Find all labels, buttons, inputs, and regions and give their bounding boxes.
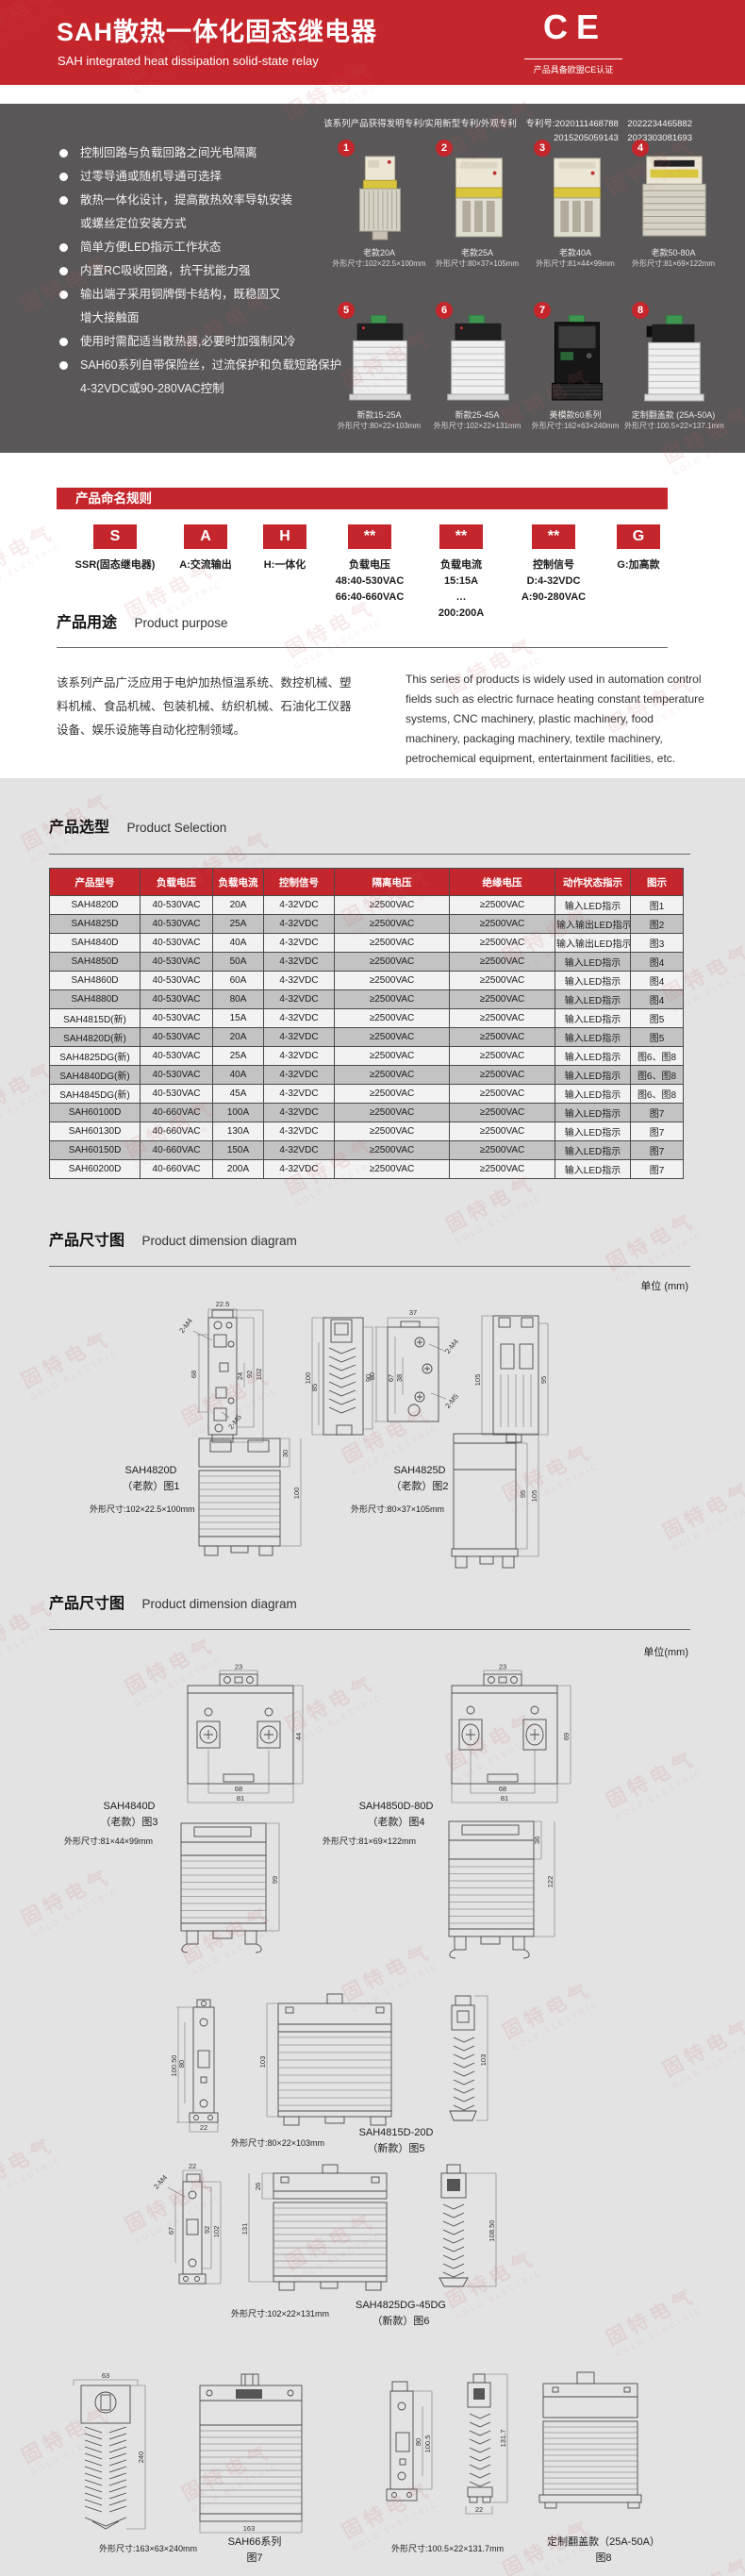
naming-desc-line: A:90-280VAC: [497, 590, 610, 606]
feature-text: 内置RC吸收回路，抗干扰能力强: [80, 264, 251, 277]
table-cell: 图4: [631, 990, 684, 1009]
purpose-rule: [57, 647, 668, 648]
product-photo: [338, 315, 421, 407]
table-cell: 45A: [213, 1085, 264, 1104]
dim-label: 22: [189, 2163, 196, 2170]
bullet-dot-icon: [59, 267, 68, 275]
table-cell: 50A: [213, 953, 264, 972]
naming-code-box: A: [184, 524, 227, 549]
table-cell: 输入LED指示: [555, 1085, 631, 1104]
naming-part: GG:加高款: [582, 524, 695, 573]
table-header-cell: 产品型号: [50, 869, 141, 896]
product-size: 外形尺寸:80×37×105mm: [428, 258, 526, 269]
table-cell: 输入LED指示: [555, 1122, 631, 1141]
dim-label: 68: [190, 1371, 198, 1378]
table-row: SAH4820D40-530VAC20A4-32VDC≥2500VAC≥2500…: [50, 896, 684, 915]
product-number-badge: 7: [534, 302, 551, 319]
table-cell: SAH4845DG(新): [50, 1085, 141, 1104]
table-cell: ≥2500VAC: [335, 1104, 450, 1122]
table-cell: 200A: [213, 1160, 264, 1179]
product-gallery: 1老款20A外形尺寸:102×22.5×100mm2老款25A外形尺寸:80×3…: [330, 104, 745, 453]
fig5-caption: SAH4815D-20D （新款）图5: [321, 2125, 472, 2157]
fig7-variant: 图7: [193, 2551, 316, 2567]
table-cell: 输入LED指示: [555, 896, 631, 915]
table-row: SAH4825DG(新)40-530VAC25A4-32VDC≥2500VAC≥…: [50, 1047, 684, 1066]
table-row: SAH4860D40-530VAC60A4-32VDC≥2500VAC≥2500…: [50, 972, 684, 990]
product-photo: [534, 315, 617, 407]
table-cell: 40-530VAC: [141, 990, 213, 1009]
table-cell: SAH4840D: [50, 934, 141, 953]
page-title: SAH散热一体化固态继电器: [57, 11, 377, 48]
table-cell: 输入LED指示: [555, 953, 631, 972]
product-number-badge: 1: [338, 140, 355, 157]
dim-label: 69: [562, 1733, 571, 1740]
feature-item: 输出端子采用铜牌倒卡结构，既稳固又: [58, 283, 334, 307]
product-photo: [436, 315, 519, 407]
product-card: 7美模款60系列外形尺寸:162×63×240mm: [526, 304, 624, 431]
bullet-dot-icon: [59, 196, 68, 205]
fig6-size: 外形尺寸:102×22×131mm: [231, 2307, 329, 2319]
product-size: 外形尺寸:81×69×122mm: [624, 258, 722, 269]
dim-label: 36: [533, 1836, 541, 1844]
table-cell: ≥2500VAC: [450, 1047, 555, 1066]
bullet-dot-icon: [59, 173, 68, 181]
dim-label: 108.50: [488, 2220, 496, 2242]
feature-text: 或螺丝定位安装方式: [80, 217, 187, 230]
feature-text: 控制回路与负载回路之间光电隔离: [80, 146, 257, 159]
table-cell: SAH4880D: [50, 990, 141, 1009]
bullet-dot-icon: [59, 361, 68, 370]
table-row: SAH4820D(新)40-530VAC20A4-32VDC≥2500VAC≥2…: [50, 1028, 684, 1047]
table-cell: ≥2500VAC: [450, 896, 555, 915]
product-card: 1老款20A外形尺寸:102×22.5×100mm: [330, 141, 428, 269]
dim-label: 105: [473, 1374, 482, 1387]
table-cell: 图5: [631, 1009, 684, 1028]
table-row: SAH60100D40-660VAC100A4-32VDC≥2500VAC≥25…: [50, 1104, 684, 1122]
dim-label: 103: [258, 2056, 267, 2069]
table-header-cell: 动作状态指示: [555, 869, 631, 896]
feature-item: SAH60系列自带保险丝，过流保护和负载短路保护: [58, 354, 334, 377]
table-cell: 输入LED指示: [555, 1009, 631, 1028]
dim-label: 92: [203, 2226, 211, 2234]
feature-text: SAH60系列自带保险丝，过流保护和负载短路保护: [80, 358, 341, 372]
fig4-front-drawing: 36 122: [426, 1812, 563, 1968]
fig8-caption: 定制翻盖款（25A-50A） 图8: [514, 2534, 693, 2567]
dim-label: 2-M4: [177, 1317, 194, 1335]
dim-label: 68: [235, 1785, 242, 1793]
ce-certification-note: 产品具备欧盟CE认证: [513, 63, 634, 75]
table-header-cell: 控制信号: [264, 869, 335, 896]
table-header-cell: 负载电流: [213, 869, 264, 896]
fig1-caption: SAH4820D （老款）图1: [90, 1463, 212, 1495]
table-cell: ≥2500VAC: [450, 990, 555, 1009]
table-cell: 40-530VAC: [141, 1047, 213, 1066]
naming-code-box: **: [348, 524, 391, 549]
product-size: 外形尺寸:102×22.5×100mm: [330, 258, 428, 269]
table-cell: ≥2500VAC: [335, 953, 450, 972]
feature-item: 或螺丝定位安装方式: [58, 212, 334, 236]
naming-desc-line: 200:200A: [405, 606, 518, 622]
dim-label: 80: [414, 2438, 422, 2446]
product-name: 老款40A: [526, 246, 624, 258]
feature-text: 散热一体化设计，提高散热效率导轨安装: [80, 193, 292, 207]
table-cell: SAH60130D: [50, 1122, 141, 1141]
table-cell: 4-32VDC: [264, 1160, 335, 1179]
table-cell: SAH4860D: [50, 972, 141, 990]
dim-label: 2-M5: [226, 1413, 243, 1431]
selection-heading-en: Product Selection: [126, 821, 226, 835]
table-cell: ≥2500VAC: [335, 1028, 450, 1047]
fig1-model: SAH4820D: [90, 1463, 212, 1479]
table-cell: SAH4850D: [50, 953, 141, 972]
table-cell: SAH60100D: [50, 1104, 141, 1122]
table-cell: ≥2500VAC: [450, 1160, 555, 1179]
table-cell: ≥2500VAC: [335, 972, 450, 990]
purpose-text-en: This series of products is widely used i…: [406, 670, 709, 769]
fig8-size: 外形尺寸:100.5×22×131.7mm: [391, 2542, 504, 2554]
table-row: SAH60200D40-660VAC200A4-32VDC≥2500VAC≥25…: [50, 1160, 684, 1179]
table-cell: 60A: [213, 972, 264, 990]
table-cell: SAH4825D: [50, 915, 141, 934]
dim-label: 92: [245, 1371, 254, 1378]
dim2-unit: 单位(mm): [643, 1644, 688, 1659]
ce-divider: [524, 58, 622, 59]
dim-label: 23: [499, 1663, 506, 1671]
table-cell: 20A: [213, 1028, 264, 1047]
feature-item: 使用时需配适当散热器,必要时加强制风冷: [58, 330, 334, 354]
dim-label: 80: [368, 1372, 376, 1380]
table-cell: 40-660VAC: [141, 1104, 213, 1122]
product-photo: [632, 315, 715, 407]
table-cell: 40-660VAC: [141, 1160, 213, 1179]
product-name: 新款25-45A: [428, 408, 526, 421]
feature-text: 使用时需配适当散热器,必要时加强制风冷: [80, 335, 295, 348]
dim-label: 22.5: [216, 1300, 230, 1308]
table-cell: SAH60150D: [50, 1141, 141, 1160]
selection-table-body: SAH4820D40-530VAC20A4-32VDC≥2500VAC≥2500…: [50, 896, 684, 1179]
dim-label: 105: [530, 1490, 538, 1503]
dim-label: 95: [539, 1376, 548, 1384]
table-cell: 4-32VDC: [264, 1009, 335, 1028]
fig1-size: 外形尺寸:102×22.5×100mm: [90, 1503, 195, 1515]
dim-label: 163: [243, 2524, 256, 2533]
table-cell: ≥2500VAC: [335, 1066, 450, 1085]
product-photo: [534, 153, 617, 245]
dim-label: 122: [546, 1876, 555, 1888]
table-cell: 图1: [631, 896, 684, 915]
table-cell: 4-32VDC: [264, 1122, 335, 1141]
fig5-size: 外形尺寸:80×22×103mm: [231, 2136, 324, 2149]
dim-label: 30: [281, 1450, 290, 1457]
fig5-model: SAH4815D-20D: [321, 2125, 472, 2141]
table-cell: ≥2500VAC: [335, 1085, 450, 1104]
fig7-model: SAH66系列: [193, 2534, 316, 2551]
feature-item: 4-32VDC或90-280VAC控制: [58, 377, 334, 401]
naming-code-box: S: [93, 524, 137, 549]
fig3-model: SAH4840D: [68, 1799, 190, 1815]
dim2-heading-en: Product dimension diagram: [141, 1597, 296, 1611]
table-header-cell: 绝缘电压: [450, 869, 555, 896]
table-cell: 40-530VAC: [141, 1085, 213, 1104]
dim-label: 37: [409, 1308, 417, 1317]
table-cell: 图7: [631, 1141, 684, 1160]
table-cell: ≥2500VAC: [335, 1122, 450, 1141]
table-cell: ≥2500VAC: [335, 1009, 450, 1028]
table-cell: 40A: [213, 1066, 264, 1085]
fig3-top-drawing: 23 44 68 81: [165, 1663, 316, 1806]
dim-label: 81: [237, 1794, 244, 1803]
table-cell: ≥2500VAC: [450, 1104, 555, 1122]
table-cell: ≥2500VAC: [450, 953, 555, 972]
fig3-front-drawing: 99: [158, 1814, 290, 1965]
dim-label: 67: [167, 2227, 175, 2235]
dim-label: 2-M4: [152, 2173, 169, 2191]
selection-table: 产品型号负载电压负载电流控制信号隔离电压绝缘电压动作状态指示图示 SAH4820…: [49, 868, 684, 1179]
fig6-drawing: 22 2-M4 67 92 102 26 131: [141, 2163, 519, 2297]
dim-label: 22: [475, 2505, 483, 2514]
table-cell: SAH4820D: [50, 896, 141, 915]
feature-item: 简单方便LED指示工作状态: [58, 236, 334, 259]
table-cell: 40A: [213, 934, 264, 953]
table-cell: SAH4820D(新): [50, 1028, 141, 1047]
header-gap: [0, 85, 745, 104]
product-size: 外形尺寸:100.5×22×137.1mm: [624, 421, 722, 431]
feature-list: 控制回路与负载回路之间光电隔离过零导通或随机导通可选择散热一体化设计，提高散热效…: [58, 141, 334, 401]
table-cell: 图7: [631, 1122, 684, 1141]
fig3-size: 外形尺寸:81×44×99mm: [64, 1835, 153, 1847]
product-card: 5新款15-25A外形尺寸:80×22×103mm: [330, 304, 428, 431]
table-cell: 80A: [213, 990, 264, 1009]
product-size: 外形尺寸:102×22×131mm: [428, 421, 526, 431]
purpose-heading: 产品用途 Product purpose: [57, 609, 228, 632]
table-cell: SAH4815D(新): [50, 1009, 141, 1028]
fig2-front-drawing: 95 105: [439, 1424, 542, 1585]
table-cell: 图7: [631, 1104, 684, 1122]
table-cell: 4-32VDC: [264, 1047, 335, 1066]
feature-item: 内置RC吸收回路，抗干扰能力强: [58, 259, 334, 283]
table-cell: 40-530VAC: [141, 915, 213, 934]
dim-label: 100: [304, 1372, 312, 1385]
bullet-dot-icon: [59, 338, 68, 346]
table-cell: ≥2500VAC: [450, 1085, 555, 1104]
table-header-cell: 负载电压: [141, 869, 213, 896]
product-size: 外形尺寸:162×63×240mm: [526, 421, 624, 431]
table-cell: 输入LED指示: [555, 990, 631, 1009]
product-card: 6新款25-45A外形尺寸:102×22×131mm: [428, 304, 526, 431]
table-cell: SAH60200D: [50, 1160, 141, 1179]
table-cell: ≥2500VAC: [450, 972, 555, 990]
table-cell: 输入LED指示: [555, 1141, 631, 1160]
table-cell: 4-32VDC: [264, 896, 335, 915]
table-cell: 图7: [631, 1160, 684, 1179]
product-name: 老款50-80A: [624, 246, 722, 258]
dim1-rule: [49, 1266, 690, 1267]
dim-label: 38: [395, 1374, 404, 1382]
dim-label: 100: [292, 1487, 301, 1500]
table-cell: 25A: [213, 915, 264, 934]
dim-label: 23: [235, 1663, 242, 1671]
purpose-heading-en: Product purpose: [134, 616, 227, 630]
table-cell: ≥2500VAC: [335, 1047, 450, 1066]
dim-label: 80: [177, 2060, 186, 2068]
table-cell: ≥2500VAC: [450, 915, 555, 934]
table-cell: 图3: [631, 934, 684, 953]
fig2-model: SAH4825D: [363, 1463, 476, 1479]
table-cell: 输入LED指示: [555, 972, 631, 990]
table-cell: 4-32VDC: [264, 990, 335, 1009]
table-cell: 40-530VAC: [141, 1028, 213, 1047]
dim-label: 24: [236, 1372, 244, 1380]
naming-code-box: G: [617, 524, 660, 549]
fig1-front-drawing: 30 100: [184, 1431, 306, 1572]
bullet-dot-icon: [59, 291, 68, 299]
naming-description: G:加高款: [582, 557, 695, 573]
datasheet-page: 固特电气GOLD ELECTRIC固特电气GOLD ELECTRIC固特电气GO…: [0, 0, 745, 2576]
table-cell: 图6、图8: [631, 1047, 684, 1066]
table-row: SAH4845DG(新)40-530VAC45A4-32VDC≥2500VAC≥…: [50, 1085, 684, 1104]
product-card: 8定制翻盖款 (25A-50A)外形尺寸:100.5×22×137.1mm: [624, 304, 722, 431]
table-cell: 40-530VAC: [141, 972, 213, 990]
product-size: 外形尺寸:81×44×99mm: [526, 258, 624, 269]
dim-label: 102: [212, 2226, 221, 2238]
table-cell: 4-32VDC: [264, 972, 335, 990]
ce-mark-icon: CE: [543, 8, 607, 47]
dim-label: 240: [137, 2451, 145, 2464]
naming-code-box: **: [532, 524, 575, 549]
selection-heading-zh: 产品选型: [49, 820, 109, 836]
table-cell: 40-530VAC: [141, 1066, 213, 1085]
table-cell: ≥2500VAC: [335, 915, 450, 934]
feature-text: 输出端子采用铜牌倒卡结构，既稳固又: [80, 288, 281, 301]
fig5-variant: （新款）图5: [321, 2141, 472, 2157]
fig7-drawing: 63 240 163: [47, 2370, 321, 2538]
dim-label: 103: [479, 2054, 488, 2067]
table-cell: 图4: [631, 953, 684, 972]
product-name: 老款25A: [428, 246, 526, 258]
naming-purpose-section: 产品命名规则 SSSR(固态继电器)AA:交流输出HH:一体化**负载电压48:…: [0, 453, 745, 778]
feature-text: 简单方便LED指示工作状态: [80, 241, 221, 254]
table-cell: 130A: [213, 1122, 264, 1141]
bullet-dot-icon: [59, 149, 68, 158]
fig8-model: 定制翻盖款（25A-50A）: [514, 2534, 693, 2551]
table-cell: ≥2500VAC: [335, 1160, 450, 1179]
selection-table-header-row: 产品型号负载电压负载电流控制信号隔离电压绝缘电压动作状态指示图示: [50, 869, 684, 896]
dim-label: 100.5: [423, 2435, 432, 2453]
table-cell: ≥2500VAC: [335, 934, 450, 953]
dim-label: 63: [102, 2371, 109, 2380]
table-cell: 输入LED指示: [555, 1160, 631, 1179]
dim2-rule: [49, 1629, 690, 1630]
table-cell: ≥2500VAC: [450, 934, 555, 953]
product-card: 3老款40A外形尺寸:81×44×99mm: [526, 141, 624, 269]
table-cell: 4-32VDC: [264, 1028, 335, 1047]
table-cell: ≥2500VAC: [450, 1028, 555, 1047]
fig8-drawing: 80 100.5 131.7 22: [358, 2370, 660, 2538]
product-photo: [338, 153, 421, 245]
table-cell: 图4: [631, 972, 684, 990]
table-cell: 4-32VDC: [264, 1085, 335, 1104]
fig7-size: 外形尺寸:163×63×240mm: [99, 2542, 197, 2554]
table-cell: 40-530VAC: [141, 896, 213, 915]
fig6-caption: SAH4825DG-45DG （新款）图6: [316, 2298, 486, 2330]
dim-label: 2-M4: [443, 1338, 460, 1355]
table-cell: 4-32VDC: [264, 915, 335, 934]
dim-label: 85: [310, 1384, 319, 1391]
dim-label: 68: [499, 1785, 506, 1793]
selection-heading: 产品选型 Product Selection: [49, 814, 226, 837]
table-row: SAH60150D40-660VAC150A4-32VDC≥2500VAC≥25…: [50, 1141, 684, 1160]
table-cell: 输入输出LED指示: [555, 934, 631, 953]
feature-text: 增大接触面: [80, 311, 140, 324]
dim-label: 26: [254, 2183, 262, 2190]
table-cell: 图5: [631, 1028, 684, 1047]
dim-label: 22: [200, 2123, 207, 2132]
table-cell: 输入LED指示: [555, 1066, 631, 1085]
feature-item: 过零导通或随机导通可选择: [58, 165, 334, 189]
fig6-model: SAH4825DG-45DG: [316, 2298, 486, 2314]
product-number-badge: 8: [632, 302, 649, 319]
table-cell: 4-32VDC: [264, 1104, 335, 1122]
fig2-variant: （老款）图2: [363, 1479, 476, 1495]
dim-label: 99: [271, 1876, 279, 1884]
table-cell: 图2: [631, 915, 684, 934]
product-number-badge: 6: [436, 302, 453, 319]
feature-text: 4-32VDC或90-280VAC控制: [80, 382, 224, 395]
table-cell: ≥2500VAC: [450, 1009, 555, 1028]
dim1-unit: 单位 (mm): [640, 1278, 688, 1293]
product-photo: [436, 153, 519, 245]
table-cell: ≥2500VAC: [335, 990, 450, 1009]
dim-label: 131: [240, 2223, 249, 2235]
dim-label: 131.7: [499, 2430, 507, 2448]
naming-code-box: H: [263, 524, 306, 549]
feature-item: 增大接触面: [58, 307, 334, 330]
table-header-cell: 隔离电压: [335, 869, 450, 896]
dim1-heading: 产品尺寸图 Product dimension diagram: [49, 1227, 297, 1250]
product-number-badge: 3: [534, 140, 551, 157]
table-row: SAH4815D(新)40-530VAC15A4-32VDC≥2500VAC≥2…: [50, 1009, 684, 1028]
product-name: 新款15-25A: [330, 408, 428, 421]
table-row: SAH4840D40-530VAC40A4-32VDC≥2500VAC≥2500…: [50, 934, 684, 953]
table-cell: 40-660VAC: [141, 1141, 213, 1160]
product-number-badge: 5: [338, 302, 355, 319]
fig7-caption: SAH66系列 图7: [193, 2534, 316, 2567]
table-cell: 输入LED指示: [555, 1028, 631, 1047]
dim-label: 102: [255, 1369, 263, 1381]
table-row: SAH4850D40-530VAC50A4-32VDC≥2500VAC≥2500…: [50, 953, 684, 972]
dim1-heading-en: Product dimension diagram: [141, 1234, 296, 1248]
table-cell: ≥2500VAC: [450, 1066, 555, 1085]
table-cell: SAH4825DG(新): [50, 1047, 141, 1066]
table-cell: 40-530VAC: [141, 1009, 213, 1028]
table-cell: ≥2500VAC: [450, 1141, 555, 1160]
fig2-size: 外形尺寸:80×37×105mm: [351, 1503, 444, 1515]
table-cell: 40-660VAC: [141, 1122, 213, 1141]
naming-desc-line: D:4-32VDC: [497, 573, 610, 590]
purpose-heading-zh: 产品用途: [57, 615, 117, 631]
bullet-dot-icon: [59, 243, 68, 252]
table-cell: 4-32VDC: [264, 934, 335, 953]
product-size: 外形尺寸:80×22×103mm: [330, 421, 428, 431]
fig4-top-drawing: 23 69 68 81: [429, 1663, 589, 1806]
gray-zone: 产品选型 Product Selection 产品型号负载电压负载电流控制信号隔…: [0, 778, 745, 2576]
table-cell: 图6、图8: [631, 1085, 684, 1104]
dim-label: 95: [519, 1490, 527, 1498]
table-cell: 20A: [213, 896, 264, 915]
naming-code-box: **: [439, 524, 483, 549]
table-cell: 4-32VDC: [264, 1066, 335, 1085]
table-cell: 150A: [213, 1141, 264, 1160]
